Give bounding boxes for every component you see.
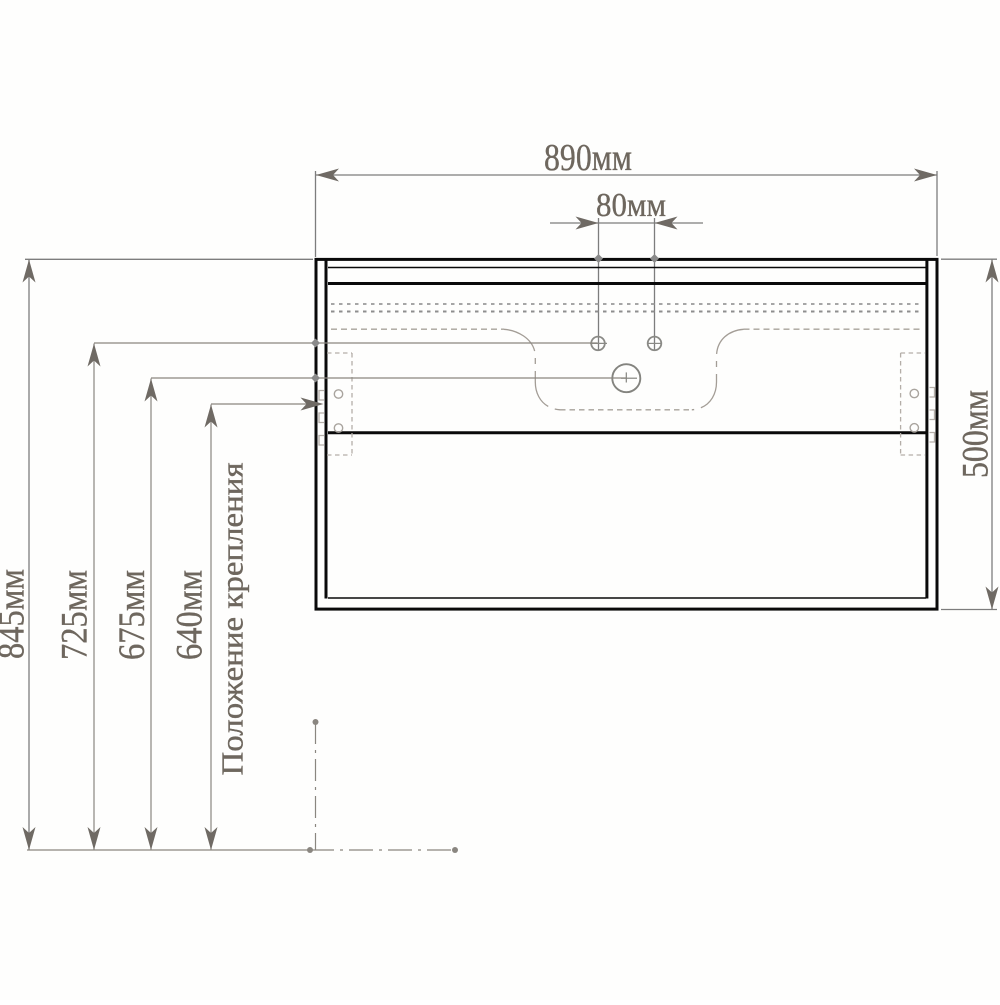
svg-text:845мм: 845мм — [0, 569, 33, 659]
svg-text:500мм: 500мм — [956, 390, 997, 478]
svg-text:640мм: 640мм — [170, 570, 211, 660]
svg-text:Положение крепления: Положение крепления — [215, 463, 250, 776]
svg-text:675мм: 675мм — [112, 570, 153, 660]
svg-text:890мм: 890мм — [544, 137, 632, 179]
svg-text:725мм: 725мм — [55, 570, 96, 660]
svg-text:80мм: 80мм — [596, 187, 666, 224]
